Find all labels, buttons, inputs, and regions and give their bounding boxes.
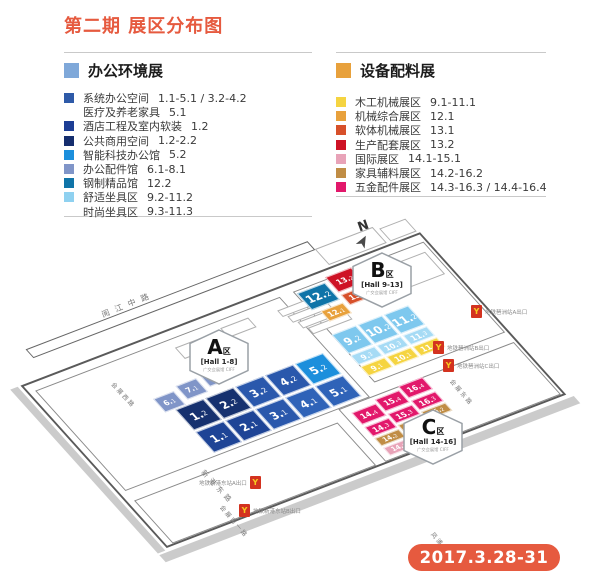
- metro-exit-label: 地铁琶洲站C出口: [457, 362, 499, 370]
- zone-letter: C区: [402, 417, 464, 438]
- legend-item: 办公配件馆6.1-8.1: [64, 162, 330, 176]
- legend-item: 国际展区14.1-15.1: [336, 152, 576, 166]
- legend-range: 14.2-16.2: [430, 167, 483, 180]
- legend-range: 14.3-16.3 / 14.4-16.4: [430, 181, 547, 194]
- legend-header-swatch-icon: [336, 63, 351, 78]
- date-badge: 2017.3.28-31: [408, 544, 560, 571]
- legend-swatch-icon: [64, 178, 74, 188]
- legend-range: 13.2: [430, 138, 455, 151]
- exhibition-map-page: 第二期 展区分布图 办公环境展 系统办公空间1.1-5.1 / 3.2-4.2医…: [0, 0, 600, 578]
- legend-label: 五金配件展区: [355, 179, 421, 195]
- divider: [336, 196, 546, 197]
- legend-header: 办公环境展: [64, 60, 330, 81]
- divider: [336, 52, 546, 53]
- legend-item: 系统办公空间1.1-5.1 / 3.2-4.2: [64, 91, 330, 105]
- zone-badge-c: C区[Hall 14-16]广交会展馆 CIFF: [402, 409, 464, 465]
- legend-range: 14.1-15.1: [408, 152, 461, 165]
- north-label: N: [356, 218, 371, 236]
- zone-letter: B区: [351, 260, 413, 281]
- legend-item: 舒适坐具区9.2-11.2: [64, 190, 330, 204]
- legend-item: 家具辅料展区14.2-16.2: [336, 166, 576, 180]
- legend-item: 钢制精品馆12.2: [64, 176, 330, 190]
- legend-label: 时尚坐具区: [83, 204, 138, 220]
- zone-hall-range: [Hall 14-16]: [402, 438, 464, 446]
- legend-header: 设备配料展: [336, 60, 576, 81]
- legend-swatch-icon: [336, 97, 346, 107]
- legend-equipment-accessories: 设备配料展 木工机械展区9.1-11.1机械综合展区12.1软体机械展区13.1…: [336, 60, 576, 194]
- legend-item: 公共商用空间1.2-2.2: [64, 134, 330, 148]
- legend-swatch-icon: [336, 140, 346, 150]
- legend-item: 时尚坐具区9.3-11.3: [64, 205, 330, 219]
- legend-swatch-icon: [64, 150, 74, 160]
- legend-swatch-icon: [336, 125, 346, 135]
- legend-office-environment: 办公环境展 系统办公空间1.1-5.1 / 3.2-4.2医疗及养老家具5.1酒…: [64, 60, 330, 219]
- metro-exit-label: 地铁琶洲站A出口: [485, 308, 527, 316]
- legend-swatch-icon: [336, 154, 346, 164]
- legend-range: 6.1-8.1: [147, 163, 186, 176]
- zone-badge-b: B区[Hall 9-13]广交会展馆 CIFF: [351, 252, 413, 308]
- legend-item: 软体机械展区13.1: [336, 123, 576, 137]
- metro-exit: Y地铁新港东站B出口: [239, 504, 301, 517]
- legend-swatch-icon: [336, 182, 346, 192]
- metro-exit: Y地铁琶洲站B出口: [433, 341, 489, 354]
- legend-item: 智能科技办公馆5.2: [64, 148, 330, 162]
- metro-exit-label: 地铁琶洲站B出口: [447, 344, 489, 352]
- compass-needle-icon: [356, 233, 370, 248]
- metro-exit: Y地铁琶洲站C出口: [443, 359, 499, 372]
- legend-range: 1.1-5.1 / 3.2-4.2: [158, 92, 247, 105]
- legend-items: 系统办公空间1.1-5.1 / 3.2-4.2医疗及养老家具5.1酒店工程及室内…: [64, 91, 330, 219]
- legend-range: 12.2: [147, 177, 172, 190]
- legend-range: 5.2: [169, 148, 187, 161]
- legend-swatch-icon: [64, 93, 74, 103]
- zone-venue: 广交会展馆 CIFF: [356, 290, 409, 296]
- legend-range: 13.1: [430, 124, 455, 137]
- legend-item: 木工机械展区9.1-11.1: [336, 95, 576, 109]
- legend-header-label: 设备配料展: [360, 60, 435, 81]
- divider: [64, 52, 312, 53]
- legend-range: 1.2: [191, 120, 209, 133]
- zone-hall-range: [Hall 1-8]: [188, 358, 250, 366]
- zone-venue: 广交会展馆 CIFF: [407, 447, 460, 453]
- legend-swatch-icon: [336, 168, 346, 178]
- legend-items: 木工机械展区9.1-11.1机械综合展区12.1软体机械展区13.1生产配套展区…: [336, 95, 576, 194]
- zone-venue: 广交会展馆 CIFF: [193, 367, 246, 373]
- metro-logo-icon: Y: [239, 504, 250, 517]
- metro-logo-icon: Y: [443, 359, 454, 372]
- zone-hall-range: [Hall 9-13]: [351, 281, 413, 289]
- metro-logo-icon: Y: [433, 341, 444, 354]
- legend-range: 9.3-11.3: [147, 205, 193, 218]
- page-title: 第二期 展区分布图: [64, 12, 223, 38]
- legend-item: 生产配套展区13.2: [336, 138, 576, 152]
- legend-swatch-icon: [64, 121, 74, 131]
- legend-swatch-icon: [64, 164, 74, 174]
- legend-range: 9.1-11.1: [430, 96, 476, 109]
- legend-item: 五金配件展区14.3-16.3 / 14.4-16.4: [336, 180, 576, 194]
- zone-badge-a: A区[Hall 1-8]广交会展馆 CIFF: [188, 329, 250, 385]
- legend-item: 酒店工程及室内软装1.2: [64, 119, 330, 133]
- legend-range: 9.2-11.2: [147, 191, 193, 204]
- legend-header-swatch-icon: [64, 63, 79, 78]
- legend-swatch-icon: [336, 111, 346, 121]
- north-compass: N: [358, 219, 369, 247]
- zone-letter: A区: [188, 337, 250, 358]
- metro-exit: 地铁新港东站A出口Y: [199, 476, 261, 489]
- legend-swatch-icon: [64, 136, 74, 146]
- metro-logo-icon: Y: [471, 305, 482, 318]
- venue-map-plane: 1.22.23.24.25.21.12.13.14.15.16.17.18.11…: [10, 220, 569, 549]
- legend-header-label: 办公环境展: [88, 60, 163, 81]
- metro-logo-icon: Y: [250, 476, 261, 489]
- legend-item: 机械综合展区12.1: [336, 109, 576, 123]
- metro-exit: Y地铁琶洲站A出口: [471, 305, 527, 318]
- legend-swatch-icon: [64, 192, 74, 202]
- legend-range: 5.1: [169, 106, 187, 119]
- metro-exit-label: 地铁新港东站A出口: [199, 479, 247, 487]
- legend-item: 医疗及养老家具5.1: [64, 105, 330, 119]
- legend-range: 12.1: [430, 110, 455, 123]
- metro-exit-label: 地铁新港东站B出口: [253, 507, 301, 515]
- legend-range: 1.2-2.2: [158, 134, 197, 147]
